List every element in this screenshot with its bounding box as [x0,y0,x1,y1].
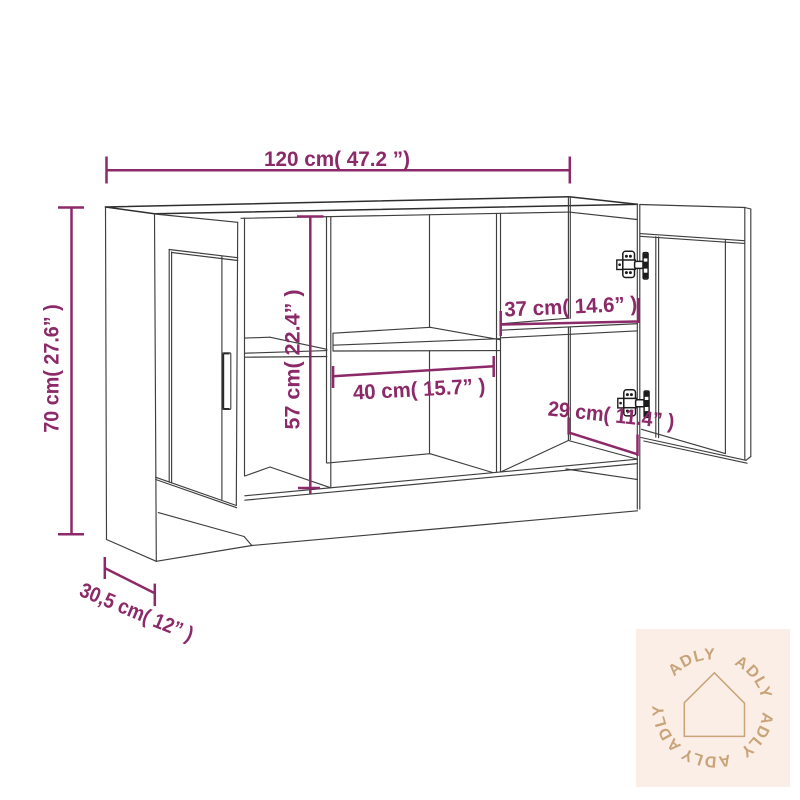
svg-text:30,5 cm( 12” ): 30,5 cm( 12” ) [76,579,197,647]
svg-text:120 cm( 47.2 ”): 120 cm( 47.2 ”) [264,148,410,171]
svg-text:37 cm( 14.6” ): 37 cm( 14.6” ) [504,293,638,322]
svg-text:70 cm( 27.6” ): 70 cm( 27.6” ) [41,304,64,433]
svg-text:57 cm( 22.4” ): 57 cm( 22.4” ) [282,290,305,430]
svg-text:40 cm( 15.7” ): 40 cm( 15.7” ) [352,375,486,405]
